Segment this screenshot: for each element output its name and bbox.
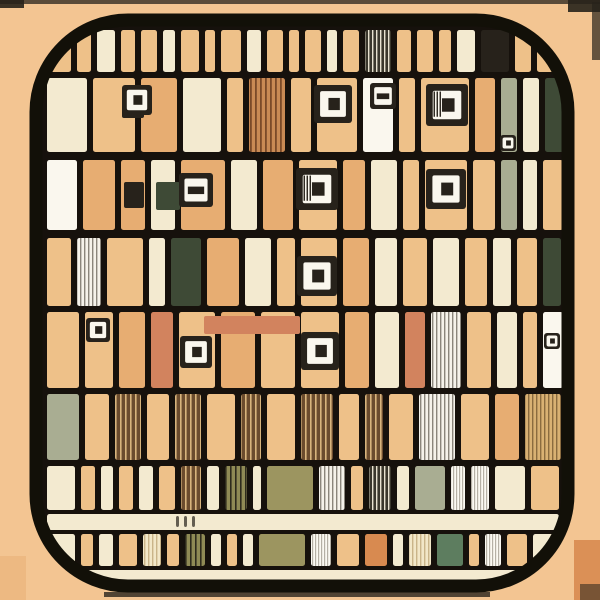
grid-cell bbox=[175, 394, 201, 460]
grid-cell bbox=[415, 466, 445, 510]
grid-cell bbox=[289, 30, 299, 72]
grid-cell bbox=[343, 30, 359, 72]
grid-cell bbox=[97, 30, 115, 72]
grid-cell bbox=[523, 160, 537, 230]
finder-eye-icon bbox=[296, 168, 338, 210]
grid-cell bbox=[375, 238, 397, 306]
grid-cell bbox=[291, 78, 311, 152]
grid-cell bbox=[301, 394, 333, 460]
grid-cell bbox=[47, 312, 79, 388]
grid-cell bbox=[147, 394, 169, 460]
grid-cell bbox=[469, 534, 479, 566]
grid-cell bbox=[345, 312, 369, 388]
outer-mark bbox=[580, 584, 600, 600]
qr-icon-illustration bbox=[0, 0, 600, 600]
grid-cell bbox=[371, 160, 397, 230]
grid-cell bbox=[351, 466, 363, 510]
grid-cell bbox=[47, 238, 71, 306]
grid-cell bbox=[77, 238, 101, 306]
grid-cell bbox=[305, 30, 321, 72]
grid-cell bbox=[81, 534, 93, 566]
grid-cell bbox=[207, 394, 235, 460]
grid-cell bbox=[495, 466, 525, 510]
grid-cell bbox=[231, 160, 257, 230]
grid-cell bbox=[119, 534, 137, 566]
grid-cell bbox=[253, 466, 261, 510]
grid-cell bbox=[419, 394, 455, 460]
grid-cell bbox=[485, 534, 501, 566]
grid-cell bbox=[221, 30, 241, 72]
grid-cell bbox=[101, 466, 113, 510]
grid-cell bbox=[245, 238, 271, 306]
finder-eye-icon bbox=[180, 336, 212, 368]
grid-cell bbox=[397, 466, 409, 510]
grid-cell bbox=[523, 312, 537, 388]
grid-cell bbox=[119, 466, 133, 510]
finder-eye-icon bbox=[86, 318, 110, 342]
grid-cell bbox=[531, 466, 559, 510]
grid-cell bbox=[227, 534, 237, 566]
grid-cell bbox=[47, 78, 87, 152]
grid-cell bbox=[495, 394, 519, 460]
grid-cell bbox=[389, 394, 413, 460]
grid-cell bbox=[517, 238, 537, 306]
grid-cell bbox=[457, 30, 475, 72]
grid-cell bbox=[211, 534, 221, 566]
grid-cell bbox=[149, 238, 165, 306]
grid-cell bbox=[81, 466, 95, 510]
outer-mark bbox=[0, 556, 26, 600]
grid-cell bbox=[267, 30, 283, 72]
outer-mark bbox=[0, 0, 600, 4]
grid-cell bbox=[267, 466, 313, 510]
grid-cell bbox=[267, 394, 295, 460]
finder-eye-icon bbox=[426, 84, 468, 126]
accent-block bbox=[156, 182, 180, 210]
grid-cell bbox=[107, 238, 143, 306]
grid-cell bbox=[141, 30, 157, 72]
grid-cell bbox=[181, 466, 201, 510]
grid-cell bbox=[83, 160, 115, 230]
grid-cell bbox=[461, 394, 489, 460]
grid-cell bbox=[47, 466, 75, 510]
accent-block bbox=[176, 516, 179, 527]
grid-cell bbox=[375, 312, 399, 388]
grid-cell bbox=[403, 160, 419, 230]
grid-cell bbox=[439, 30, 451, 72]
grid-cell bbox=[139, 466, 153, 510]
grid-cell bbox=[47, 394, 79, 460]
finder-eye-icon bbox=[314, 85, 352, 123]
grid-cell bbox=[417, 30, 433, 72]
grid-cell bbox=[543, 238, 561, 306]
grid-cell bbox=[167, 534, 179, 566]
grid-cell bbox=[225, 466, 247, 510]
finder-eye-icon bbox=[544, 333, 560, 349]
grid-cell bbox=[473, 160, 495, 230]
grid-cell bbox=[143, 534, 161, 566]
grid-cell bbox=[403, 238, 427, 306]
grid-cell bbox=[475, 78, 495, 152]
grid-cell bbox=[369, 466, 391, 510]
grid-cell bbox=[207, 238, 239, 306]
grid-cell bbox=[121, 30, 135, 72]
grid-cell bbox=[259, 534, 305, 566]
grid-cell bbox=[451, 466, 465, 510]
grid-cell bbox=[277, 238, 295, 306]
grid-cell bbox=[327, 30, 337, 72]
grid-cell bbox=[319, 466, 345, 510]
grid-cell bbox=[183, 78, 221, 152]
finder-eye-icon bbox=[426, 169, 466, 209]
accent-block bbox=[124, 182, 144, 208]
grid-cell bbox=[497, 312, 517, 388]
grid-cell bbox=[523, 78, 539, 152]
grid-cell bbox=[343, 160, 365, 230]
grid-cell bbox=[243, 534, 253, 566]
grid-cell bbox=[437, 534, 463, 566]
finder-eye-icon bbox=[301, 332, 339, 370]
grid-cell bbox=[47, 514, 559, 530]
grid-cell bbox=[85, 394, 109, 460]
outer-mark bbox=[592, 2, 600, 60]
grid-cell bbox=[339, 394, 359, 460]
finder-eye-icon bbox=[179, 173, 213, 207]
grid-cell bbox=[467, 312, 491, 388]
grid-cell bbox=[493, 238, 511, 306]
grid-cell bbox=[365, 394, 383, 460]
grid-cell bbox=[405, 312, 425, 388]
accent-block bbox=[184, 516, 187, 527]
grid-cell bbox=[501, 160, 517, 230]
grid-cell bbox=[181, 30, 199, 72]
grid-cell bbox=[151, 312, 173, 388]
grid-cell bbox=[311, 534, 331, 566]
grid-cell bbox=[171, 238, 201, 306]
grid-cell bbox=[185, 534, 205, 566]
grid-cell bbox=[433, 238, 459, 306]
grid-cell bbox=[543, 160, 563, 230]
qr-grid-svg bbox=[0, 0, 600, 600]
grid-cell bbox=[397, 30, 411, 72]
grid-cell bbox=[241, 394, 261, 460]
finder-eye-icon bbox=[297, 256, 337, 296]
grid-cell bbox=[409, 534, 431, 566]
grid-cell bbox=[393, 534, 403, 566]
grid-cell bbox=[507, 534, 527, 566]
grid-cell bbox=[365, 30, 391, 72]
grid-cell bbox=[249, 78, 285, 152]
grid-cell bbox=[399, 78, 415, 152]
grid-cell bbox=[227, 78, 243, 152]
grid-cell bbox=[163, 30, 175, 72]
accent-block bbox=[204, 316, 300, 334]
grid-cell bbox=[543, 312, 563, 388]
grid-cell bbox=[159, 466, 175, 510]
grid-cell bbox=[205, 30, 215, 72]
grid-cell bbox=[471, 466, 489, 510]
grid-cell bbox=[431, 312, 461, 388]
grid-cell bbox=[207, 466, 219, 510]
finder-eye-icon bbox=[370, 83, 396, 109]
accent-block bbox=[192, 516, 195, 527]
grid-cell bbox=[343, 238, 369, 306]
outer-mark bbox=[104, 592, 490, 597]
grid-cell bbox=[263, 160, 293, 230]
grid-cell bbox=[465, 238, 487, 306]
grid-cell bbox=[115, 394, 141, 460]
grid-cell bbox=[481, 30, 509, 72]
grid-cell bbox=[337, 534, 359, 566]
finder-eye-icon bbox=[500, 135, 516, 151]
outer-mark bbox=[0, 0, 24, 8]
grid-cell bbox=[99, 534, 113, 566]
grid-content bbox=[42, 26, 565, 582]
grid-cell bbox=[47, 160, 77, 230]
grid-cell bbox=[247, 30, 261, 72]
finder-eye-icon bbox=[122, 85, 152, 115]
grid-cell bbox=[365, 534, 387, 566]
grid-cell bbox=[525, 394, 561, 460]
grid-cell bbox=[119, 312, 145, 388]
